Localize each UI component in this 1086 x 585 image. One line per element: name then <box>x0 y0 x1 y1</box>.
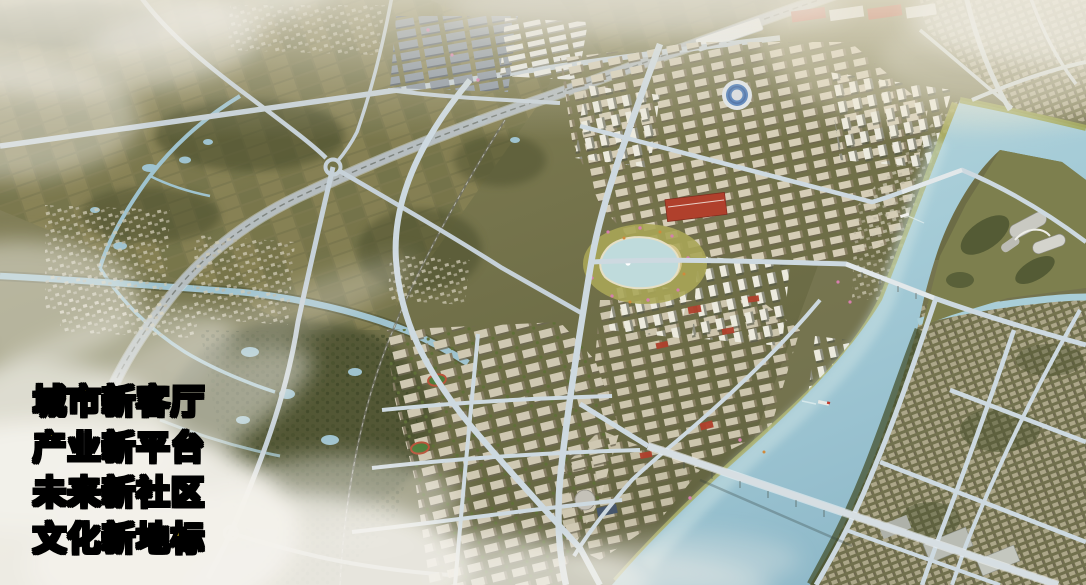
aerial-city-rendering: 城市新客厅 产业新平台 未来新社区 文化新地标 <box>0 0 1086 585</box>
slogan-line-4: 文化新地标 <box>33 518 206 564</box>
slogan-line-2: 产业新平台 <box>33 427 206 473</box>
slogan-line-3: 未来新社区 <box>33 472 206 518</box>
slogan-overlay: 城市新客厅 产业新平台 未来新社区 文化新地标 <box>33 381 206 563</box>
slogan-line-1: 城市新客厅 <box>33 381 206 427</box>
